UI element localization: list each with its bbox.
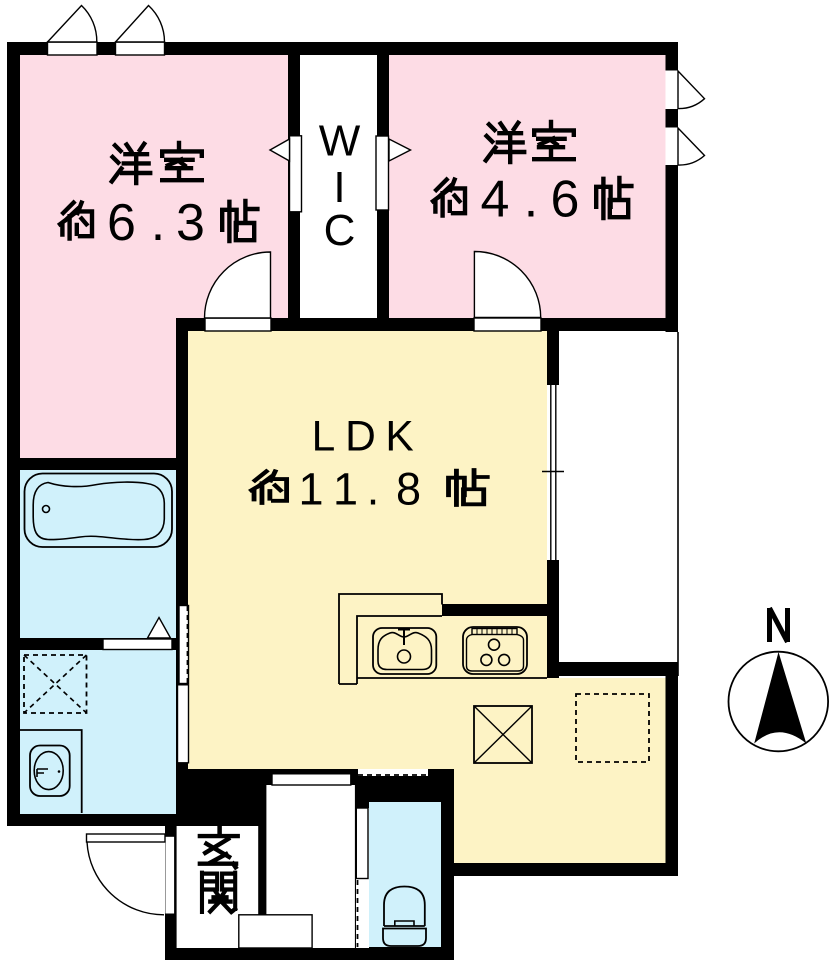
svg-text:8: 8: [396, 464, 421, 515]
svg-text:.: .: [367, 464, 380, 515]
svg-text:4: 4: [481, 171, 510, 229]
svg-text:6: 6: [107, 194, 136, 252]
svg-text:W: W: [319, 117, 361, 166]
svg-text:1: 1: [333, 464, 358, 515]
svg-text:L: L: [312, 414, 336, 461]
svg-text:6: 6: [551, 171, 580, 229]
svg-text:.: .: [524, 171, 538, 229]
svg-text:K: K: [385, 414, 413, 461]
svg-text:C: C: [324, 206, 356, 255]
svg-text:I: I: [333, 163, 345, 212]
svg-text:1: 1: [298, 464, 323, 515]
svg-text:D: D: [345, 414, 376, 461]
svg-text:3: 3: [176, 194, 205, 252]
svg-text:.: .: [151, 194, 165, 252]
